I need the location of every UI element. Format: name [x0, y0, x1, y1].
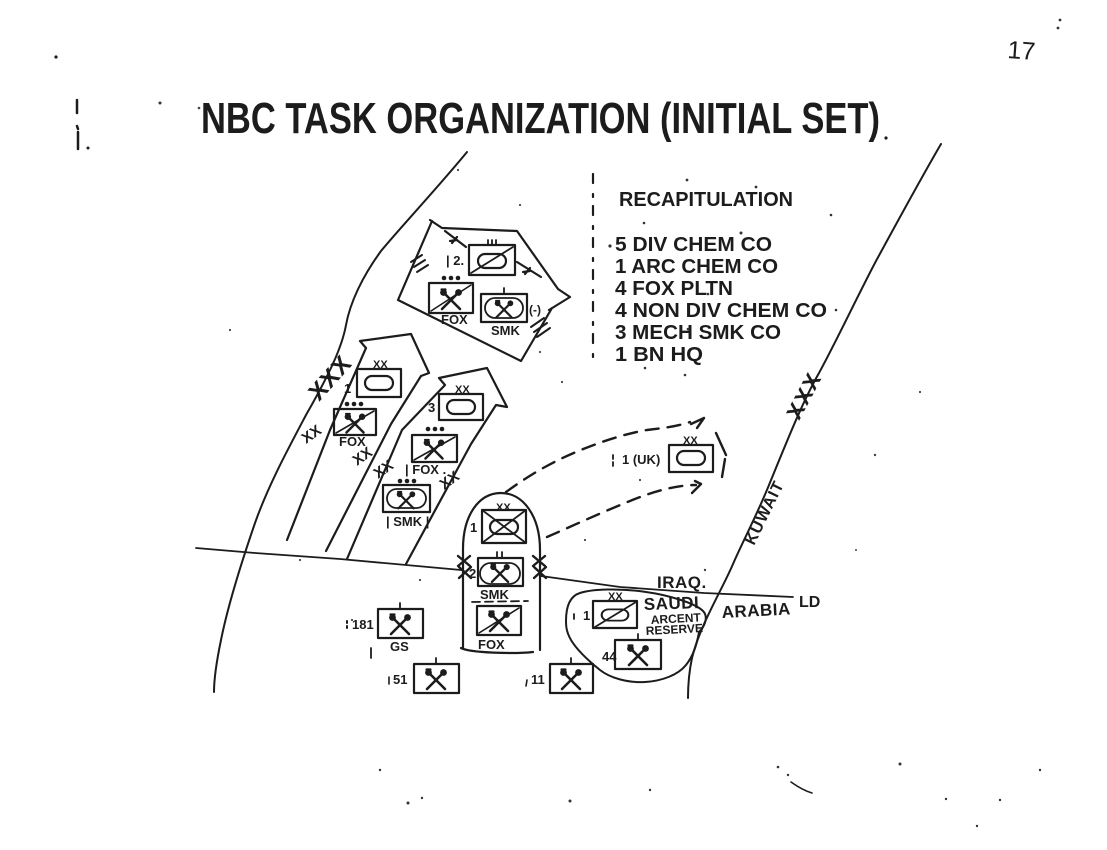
svg-text:GS: GS [390, 639, 409, 654]
svg-text:ARABIA: ARABIA [721, 599, 791, 622]
svg-text:XX: XX [373, 359, 388, 371]
svg-text:1: 1 [470, 520, 477, 535]
svg-text:1 (UK): 1 (UK) [622, 452, 660, 467]
svg-text:4 FOX PLTN: 4 FOX PLTN [615, 278, 733, 300]
svg-text:FOX: FOX [478, 637, 505, 652]
svg-text:| FOX .: | FOX . [405, 462, 446, 477]
svg-text:(-): (-) [529, 303, 541, 317]
svg-text:1: 1 [344, 381, 351, 396]
svg-text:XX: XX [683, 435, 698, 447]
svg-text:1 BN HQ: 1 BN HQ [615, 344, 703, 366]
svg-text:IRAQ.: IRAQ. [657, 573, 707, 592]
svg-text:SMK: SMK [480, 587, 510, 602]
svg-text:XX: XX [455, 384, 470, 396]
svg-text:RESERVE: RESERVE [645, 621, 703, 638]
svg-text:181: 181 [352, 617, 374, 632]
svg-text:XX: XX [496, 502, 511, 514]
svg-text:17: 17 [1007, 36, 1037, 66]
svg-text:XX: XX [299, 422, 325, 447]
svg-text:3: 3 [428, 400, 435, 415]
svg-text:4 NON DIV CHEM CO: 4 NON DIV CHEM CO [615, 300, 827, 322]
svg-text:XXX: XXX [303, 350, 357, 406]
svg-text:51: 51 [393, 672, 407, 687]
svg-text:3 MECH SMK CO: 3 MECH SMK CO [615, 322, 781, 344]
svg-text:KUWAIT: KUWAIT [742, 478, 788, 548]
svg-text:5 DIV CHEM CO: 5 DIV CHEM CO [615, 234, 772, 256]
svg-text:| 2.: | 2. [446, 253, 464, 268]
svg-text:FOX: FOX [441, 312, 468, 327]
svg-text:| SMK |: | SMK | [386, 514, 429, 529]
svg-text:RECAPITULATION: RECAPITULATION [619, 189, 793, 211]
svg-text:1 ARC CHEM CO: 1 ARC CHEM CO [615, 256, 778, 278]
svg-text:XX: XX [608, 591, 623, 603]
svg-text:SMK: SMK [491, 323, 521, 338]
svg-text:44: 44 [602, 649, 617, 664]
svg-text:XX: XX [371, 457, 397, 482]
svg-text:XXX: XXX [781, 367, 827, 423]
svg-text:NBC TASK ORGANIZATION (INITIAL: NBC TASK ORGANIZATION (INITIAL SET) [201, 94, 880, 143]
svg-text:1: 1 [583, 608, 590, 623]
svg-text:11: 11 [531, 672, 545, 687]
svg-text:LD: LD [799, 594, 820, 611]
